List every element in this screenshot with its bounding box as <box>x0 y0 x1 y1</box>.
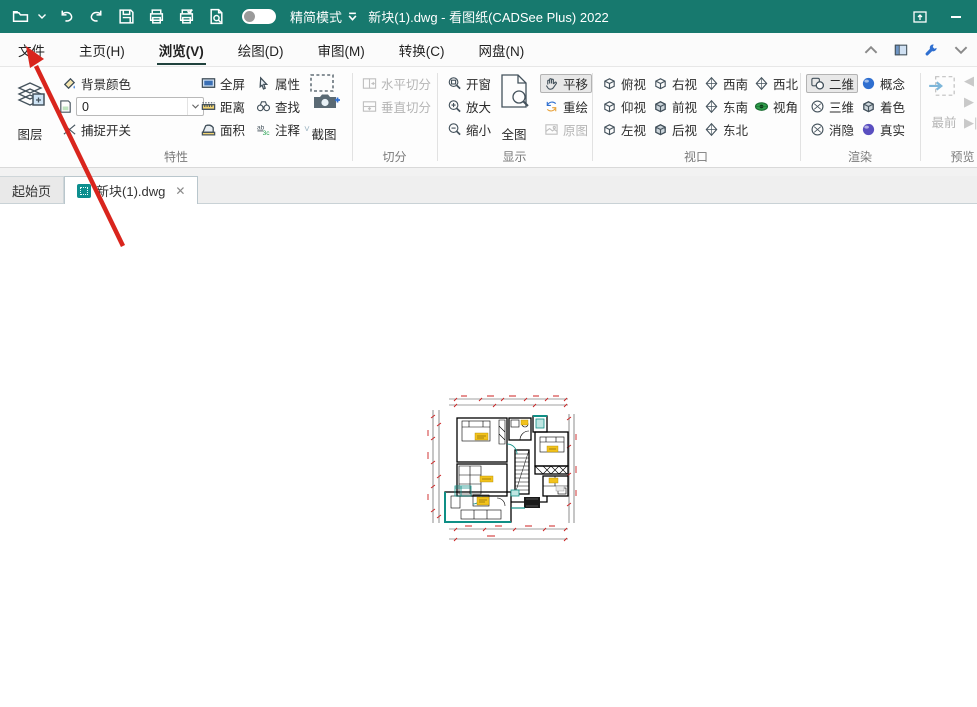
minimize-button[interactable] <box>945 6 967 28</box>
split-horizontal-label: 水平切分 <box>381 74 431 93</box>
group-label-split: 切分 <box>352 148 437 165</box>
binoculars-icon <box>256 99 271 114</box>
tab-start-page[interactable]: 起始页 <box>0 176 64 203</box>
sphere-purple-icon <box>861 122 876 137</box>
drawing-canvas[interactable] <box>0 204 977 707</box>
tab-drawing[interactable]: 新块(1).dwg ✕ <box>64 176 198 204</box>
titlebar: 精简模式 新块(1).dwg - 看图纸(CADSee Plus) 2022 <box>0 0 977 33</box>
window-controls <box>909 6 977 28</box>
pan-label: 平移 <box>563 74 588 93</box>
eye-icon <box>754 99 769 114</box>
zoom-in-label: 放大 <box>466 97 491 116</box>
render-hidden-button[interactable]: 消隐 <box>806 120 858 139</box>
bring-front-button[interactable]: 最前 <box>926 73 962 157</box>
view-top-button[interactable]: 俯视 <box>598 74 650 93</box>
cube-filled-icon <box>653 99 668 114</box>
properties-label: 属性 <box>275 74 300 93</box>
render-3d-label: 三维 <box>829 97 854 116</box>
ruler-icon <box>201 99 216 114</box>
printer-icon <box>148 8 165 25</box>
find-label: 查找 <box>275 97 300 116</box>
view-southeast-label: 东南 <box>723 97 748 116</box>
zoom-window-button[interactable]: 开窗 <box>443 74 495 93</box>
cube-icon <box>602 99 617 114</box>
caret-line-icon <box>348 12 357 21</box>
ribbon: 图层 背景颜色 0 捕捉开关 全屏 距离 面积 <box>0 66 977 168</box>
bring-front-icon <box>927 73 961 110</box>
area-button[interactable]: 面积 <box>197 120 249 139</box>
group-label-render: 渲染 <box>800 148 920 165</box>
cad-floor-plan <box>425 390 577 552</box>
screenshot-label: 截图 <box>311 124 336 143</box>
play-icon[interactable]: ▶ <box>964 95 977 108</box>
zoom-in-icon <box>447 99 462 114</box>
open-file-button[interactable] <box>8 5 32 29</box>
view-southwest-button[interactable]: 西南 <box>700 74 752 93</box>
menubar-right-tools <box>861 40 977 60</box>
view-bottom-label: 仰视 <box>621 97 646 116</box>
cube-icon <box>602 122 617 137</box>
split-vertical-icon <box>362 99 377 114</box>
view-southeast-button[interactable]: 东南 <box>700 97 752 116</box>
close-tab-icon[interactable]: ✕ <box>175 184 185 198</box>
view-northeast-label: 东北 <box>723 120 748 139</box>
view-back-label: 后视 <box>672 120 697 139</box>
paint-bucket-icon <box>62 76 77 91</box>
redo-button[interactable] <box>84 5 108 29</box>
cube-filled-icon <box>653 122 668 137</box>
view-northwest-button[interactable]: 西北 <box>750 74 802 93</box>
diamond-icon <box>754 76 769 91</box>
group-label-viewport: 视口 <box>592 148 800 165</box>
cube-filled-icon <box>861 99 876 114</box>
view-back-button[interactable]: 后视 <box>649 120 701 139</box>
refresh-icon <box>544 99 559 114</box>
split-horizontal-icon <box>362 76 377 91</box>
batch-print-button[interactable] <box>174 5 198 29</box>
diamond-icon <box>704 122 719 137</box>
previous-icon[interactable]: ◀ <box>964 74 977 87</box>
tab-drawing-label: 新块(1).dwg <box>96 181 165 200</box>
group-label-preview: 预览 <box>920 148 977 165</box>
chevron-down-icon <box>954 43 968 57</box>
zoom-window-icon <box>447 76 462 91</box>
panel-icon <box>894 43 908 57</box>
printer-check-icon <box>178 8 195 25</box>
view-left-button[interactable]: 左视 <box>598 120 650 139</box>
layers-label: 图层 <box>17 124 42 143</box>
cube-icon <box>653 76 668 91</box>
menu-file[interactable]: 文件 <box>16 34 47 66</box>
view-angle-label: 视角 <box>773 97 798 116</box>
snap-toggle-button[interactable]: 捕捉开关 <box>58 120 204 139</box>
simple-mode-toggle[interactable] <box>242 9 276 24</box>
dwg-file-icon <box>77 184 91 198</box>
cube-icon <box>602 76 617 91</box>
screenshot-button[interactable]: 截图 <box>299 73 349 157</box>
sphere-blue-icon <box>861 76 876 91</box>
group-label-properties: 特性 <box>0 148 352 165</box>
layers-button[interactable]: 图层 <box>4 73 56 157</box>
undo-icon <box>58 8 75 25</box>
minimize-icon <box>948 9 964 25</box>
fullscreen-label: 全屏 <box>220 74 245 93</box>
view-angle-button[interactable]: 视角 <box>750 97 802 116</box>
restore-window-button[interactable] <box>909 6 931 28</box>
simple-mode-label: 精简模式 <box>290 7 342 26</box>
wrench-icon <box>924 43 938 57</box>
view-northeast-button[interactable]: 东北 <box>700 120 752 139</box>
redo-icon <box>88 8 105 25</box>
distance-button[interactable]: 距离 <box>197 97 249 116</box>
render-concept-label: 概念 <box>880 74 905 93</box>
menu-review[interactable]: 审图(M) <box>316 34 367 66</box>
view-front-label: 前视 <box>672 97 697 116</box>
zoom-window-label: 开窗 <box>466 74 491 93</box>
pan-button[interactable]: 平移 <box>540 74 592 93</box>
full-view-label: 全图 <box>501 124 526 143</box>
document-magnifier-icon <box>497 73 531 113</box>
annotate-label: 注释 <box>275 120 300 139</box>
redraw-button[interactable]: 重绘 <box>540 97 592 116</box>
menu-browse[interactable]: 浏览(V) <box>157 34 206 66</box>
circle-cross-icon <box>810 99 825 114</box>
diamond-icon <box>704 99 719 114</box>
render-concept-button[interactable]: 概念 <box>857 74 909 93</box>
application-window: 精简模式 新块(1).dwg - 看图纸(CADSee Plus) 2022 文… <box>0 0 977 707</box>
tab-start-page-label: 起始页 <box>12 181 51 200</box>
render-2d-label: 二维 <box>829 74 854 93</box>
original-view-button[interactable]: 原图 <box>540 120 592 139</box>
bring-front-label: 最前 <box>931 112 956 131</box>
view-southwest-label: 西南 <box>723 74 748 93</box>
view-left-label: 左视 <box>621 120 646 139</box>
fullscreen-button[interactable]: 全屏 <box>197 74 249 93</box>
print-button[interactable] <box>144 5 168 29</box>
more-options-button[interactable] <box>951 40 971 60</box>
split-vertical-button[interactable]: 垂直切分 <box>358 97 435 116</box>
background-color-label: 背景颜色 <box>81 74 131 93</box>
print-preview-button[interactable] <box>204 5 228 29</box>
area-label: 面积 <box>220 120 245 139</box>
chevron-down-icon <box>38 14 46 19</box>
split-vertical-label: 垂直切分 <box>381 97 431 116</box>
next-icon[interactable]: ▶| <box>964 116 977 129</box>
diamond-icon <box>704 76 719 91</box>
full-view-button[interactable]: 全图 <box>492 73 536 157</box>
panel-layout-button[interactable] <box>891 40 911 60</box>
view-bottom-button[interactable]: 仰视 <box>598 97 650 116</box>
render-shaded-button[interactable]: 着色 <box>857 97 909 116</box>
menubar: 文件 主页(H) 浏览(V) 绘图(D) 审图(M) 转换(C) 网盘(N) <box>0 33 977 66</box>
color-select[interactable]: 0 <box>76 97 204 116</box>
menu-items: 文件 主页(H) 浏览(V) 绘图(D) 审图(M) 转换(C) 网盘(N) <box>0 34 526 66</box>
split-horizontal-button[interactable]: 水平切分 <box>358 74 435 93</box>
render-hidden-label: 消隐 <box>829 120 854 139</box>
open-file-dropdown[interactable] <box>38 5 48 29</box>
image-icon <box>544 122 559 137</box>
background-color-button[interactable]: 背景颜色 <box>58 74 204 93</box>
snap-toggle-label: 捕捉开关 <box>81 120 131 139</box>
area-icon <box>201 122 216 137</box>
quick-access-toolbar: 精简模式 <box>0 5 358 29</box>
render-2d-button[interactable]: 二维 <box>806 74 858 93</box>
toggle-knob <box>244 11 255 22</box>
simple-mode-dropdown[interactable] <box>348 5 358 29</box>
2d-icon <box>810 76 825 91</box>
zoom-in-button[interactable]: 放大 <box>443 97 495 116</box>
view-right-label: 右视 <box>672 74 697 93</box>
render-3d-button[interactable]: 三维 <box>806 97 858 116</box>
redraw-label: 重绘 <box>563 97 588 116</box>
group-label-display: 显示 <box>437 148 592 165</box>
save-icon <box>118 8 135 25</box>
zoom-out-button[interactable]: 缩小 <box>443 120 495 139</box>
distance-label: 距离 <box>220 97 245 116</box>
camera-icon <box>307 73 341 113</box>
restore-window-icon <box>912 9 928 25</box>
color-select-value: 0 <box>82 100 89 114</box>
menu-convert[interactable]: 转换(C) <box>397 34 447 66</box>
view-top-label: 俯视 <box>621 74 646 93</box>
view-front-button[interactable]: 前视 <box>649 97 701 116</box>
zoom-out-icon <box>447 122 462 137</box>
render-realistic-label: 真实 <box>880 120 905 139</box>
render-shaded-label: 着色 <box>880 97 905 116</box>
chevron-up-icon <box>864 43 878 57</box>
original-view-label: 原图 <box>563 120 588 139</box>
view-right-button[interactable]: 右视 <box>649 74 701 93</box>
menu-home[interactable]: 主页(H) <box>77 34 127 66</box>
document-magnifier-icon <box>208 8 225 25</box>
menu-netdisk[interactable]: 网盘(N) <box>477 34 527 66</box>
monitor-icon <box>201 76 216 91</box>
view-northwest-label: 西北 <box>773 74 798 93</box>
zoom-out-label: 缩小 <box>466 120 491 139</box>
document-tabstrip: 起始页 新块(1).dwg ✕ <box>0 176 977 204</box>
snap-icon <box>62 122 77 137</box>
abc-annotation-icon <box>256 122 271 137</box>
settings-button[interactable] <box>921 40 941 60</box>
collapse-ribbon-button[interactable] <box>861 40 881 60</box>
render-realistic-button[interactable]: 真实 <box>857 120 909 139</box>
folder-open-icon <box>12 8 29 25</box>
cursor-icon <box>256 76 271 91</box>
layers-icon <box>13 73 47 113</box>
undo-button[interactable] <box>54 5 78 29</box>
circle-cross-icon <box>810 122 825 137</box>
color-page-icon <box>58 99 73 114</box>
hand-icon <box>544 76 559 91</box>
menu-draw[interactable]: 绘图(D) <box>236 34 286 66</box>
save-button[interactable] <box>114 5 138 29</box>
